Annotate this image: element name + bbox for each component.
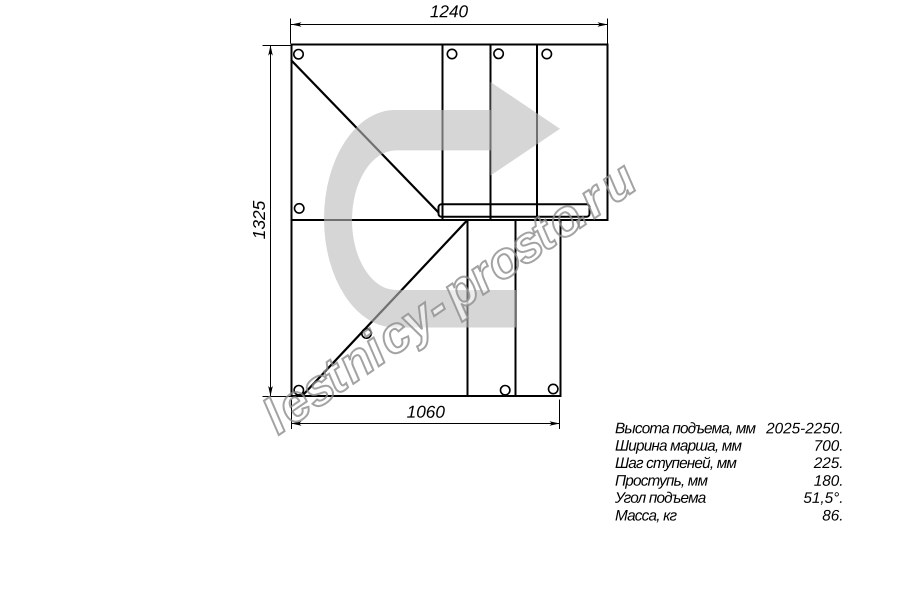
svg-text:Масса, кг: Масса, кг xyxy=(615,507,678,524)
svg-text:Проступь, мм: Проступь, мм xyxy=(615,473,708,490)
svg-text:1060: 1060 xyxy=(407,402,446,422)
svg-text:2025-2250.: 2025-2250. xyxy=(765,420,843,437)
svg-text:Высота подъема, мм: Высота подъема, мм xyxy=(615,420,757,437)
svg-text:1325: 1325 xyxy=(249,200,269,239)
svg-text:225.: 225. xyxy=(813,455,844,472)
svg-text:Шаг ступеней, мм: Шаг ступеней, мм xyxy=(615,455,737,472)
svg-text:Угол подъема: Угол подъема xyxy=(614,490,706,507)
svg-text:1240: 1240 xyxy=(430,1,469,21)
svg-text:51,5°.: 51,5°. xyxy=(803,490,843,507)
svg-text:86.: 86. xyxy=(822,508,843,525)
svg-text:Ширина марша, мм: Ширина марша, мм xyxy=(615,438,742,455)
svg-text:180.: 180. xyxy=(814,473,844,490)
svg-text:lestnicy-prosto.ru: lestnicy-prosto.ru xyxy=(252,149,646,444)
svg-text:700.: 700. xyxy=(814,438,844,455)
